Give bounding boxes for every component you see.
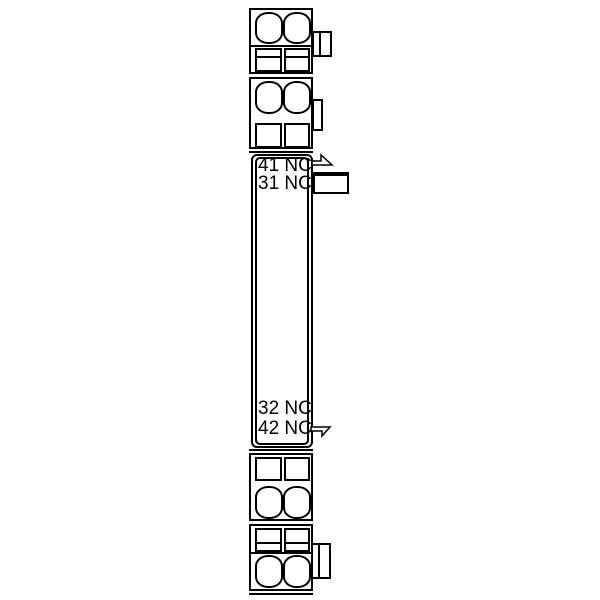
screw-head-icon [255,555,283,588]
terminal-clamp [255,48,282,72]
terminal-clamp [284,528,310,552]
actuation-arrow-bottom-icon [309,424,335,440]
terminal-clamp [284,48,310,72]
clamp-split-line [255,542,282,544]
mounting-tab-top [312,31,332,57]
clamp-split-line [255,56,282,58]
terminal-clamp [284,457,310,481]
terminal-clamp [255,528,282,552]
terminal-label-32nc: 32 NC [258,399,312,418]
mounting-tab-line [319,33,321,55]
block-separator-line [249,593,313,595]
screw-head-icon [255,81,283,114]
terminal-label-42nc: 42 NC [258,419,312,438]
actuator-tab [313,172,349,194]
technical-drawing-canvas: 41 NC 31 NC 32 NC 42 NC [0,0,600,600]
clamp-split-line [284,542,310,544]
terminal-clamp [255,123,282,148]
block-separator-line [249,151,313,153]
mounting-tab-bottom [311,543,331,579]
screw-head-icon [283,12,311,44]
block-divider-line [251,45,311,47]
terminal-clamp [255,457,282,481]
screw-head-icon [283,555,311,588]
mounting-tab-small-top [312,99,323,131]
actuation-arrow-top-icon [309,152,335,168]
block-separator-line [249,449,313,451]
block-divider-line [251,552,311,554]
screw-head-icon [283,486,311,519]
screw-head-icon [255,486,283,519]
screw-head-icon [255,12,283,44]
terminal-label-31nc: 31 NC [258,174,312,193]
mounting-tab-line [318,545,320,577]
screw-head-icon [283,81,311,114]
terminal-clamp [284,123,310,148]
clamp-split-line [284,56,310,58]
